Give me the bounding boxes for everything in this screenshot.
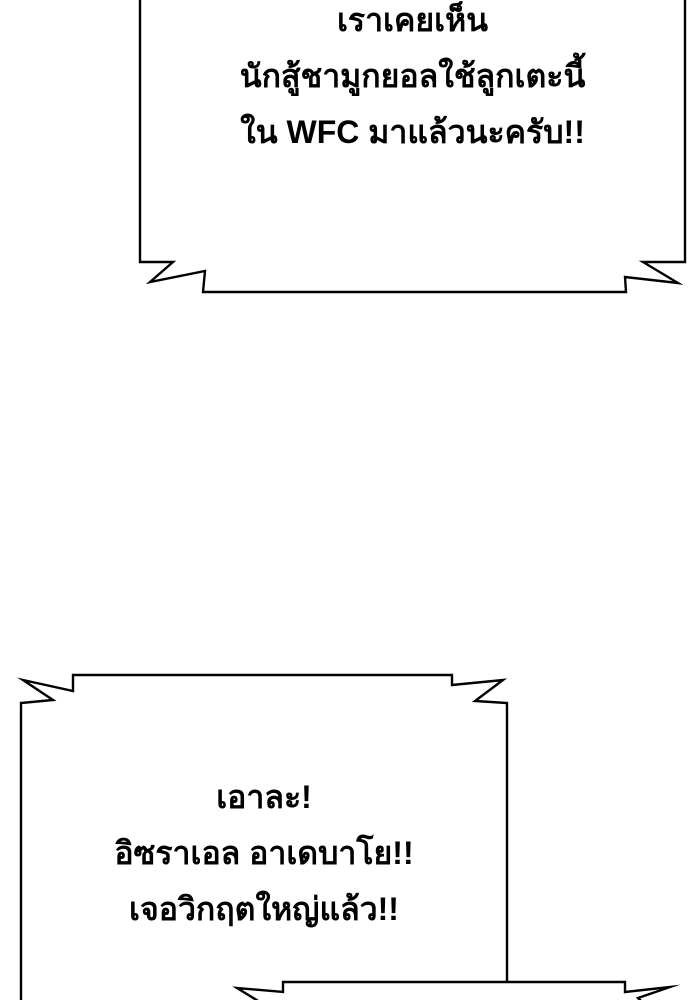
- speech-line: ใน WFC มาแล้วนะครับ!!: [140, 104, 685, 160]
- speech-line: เจอวิกฤตใหญ่แล้ว!!: [21, 881, 507, 937]
- speech-line: เราเคยเห็น: [140, 0, 685, 48]
- speech-line: อิซราเอล อาเดบาโย!!: [21, 825, 507, 881]
- comic-panel: เราเคยเห็น นักสู้ชามูกยอลใช้ลูกเตะนี้ ใน…: [0, 0, 690, 1000]
- speech-line: เอาละ!: [21, 769, 507, 825]
- speech-bubble-top-text: เราเคยเห็น นักสู้ชามูกยอลใช้ลูกเตะนี้ ใน…: [140, 0, 685, 160]
- speech-line: นักสู้ชามูกยอลใช้ลูกเตะนี้: [140, 48, 685, 104]
- speech-bubble-middle-text: เอาละ! อิซราเอล อาเดบาโย!! เจอวิกฤตใหญ่แ…: [21, 769, 507, 937]
- speech-bubble-bottom-outline: [237, 982, 670, 1000]
